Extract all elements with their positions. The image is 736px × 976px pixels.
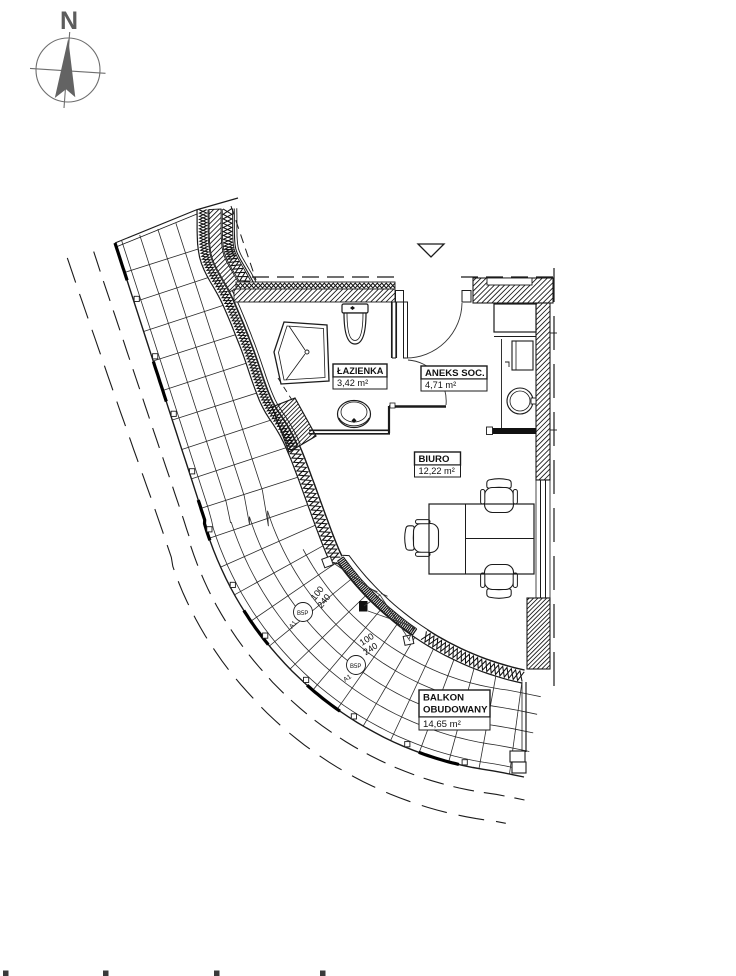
svg-text:14,65 m²: 14,65 m² xyxy=(423,719,462,730)
svg-text:N: N xyxy=(60,7,78,35)
svg-text:BALKON: BALKON xyxy=(423,693,464,704)
svg-text:12,22 m²: 12,22 m² xyxy=(419,466,455,476)
svg-text:ANEKS SOC.: ANEKS SOC. xyxy=(425,368,485,379)
svg-text:3,42 m²: 3,42 m² xyxy=(337,378,368,388)
svg-text:4,71 m²: 4,71 m² xyxy=(425,380,456,390)
svg-text:B5P: B5P xyxy=(350,664,361,670)
svg-text:B5P: B5P xyxy=(297,611,308,617)
svg-text:ŁAZIENKA: ŁAZIENKA xyxy=(337,366,384,376)
svg-text:BIURO: BIURO xyxy=(419,454,450,465)
svg-text:OBUDOWANY: OBUDOWANY xyxy=(423,705,488,716)
